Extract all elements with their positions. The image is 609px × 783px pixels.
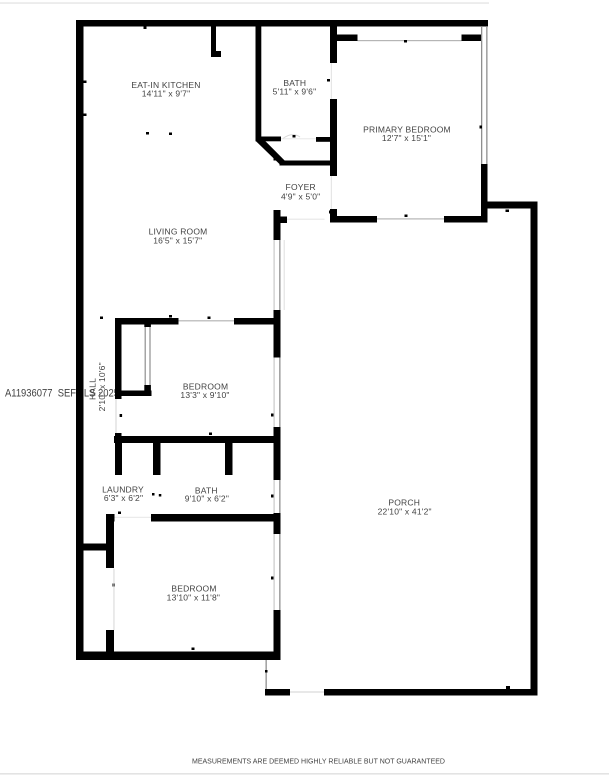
svg-text:FOYER: FOYER — [286, 182, 316, 192]
svg-text:5'11" x 9'6": 5'11" x 9'6" — [273, 87, 317, 97]
svg-text:6'3" x 6'2": 6'3" x 6'2" — [104, 493, 143, 503]
svg-text:14'11" x 9'7": 14'11" x 9'7" — [142, 88, 191, 98]
svg-text:16'5" x 15'7": 16'5" x 15'7" — [153, 236, 202, 246]
svg-text:22'10" x 41'2": 22'10" x 41'2" — [378, 507, 432, 517]
svg-text:13'10" x 11'8": 13'10" x 11'8" — [167, 593, 221, 603]
svg-text:HALL: HALL — [87, 378, 97, 400]
svg-text:MEASUREMENTS ARE DEEMED HIGHLY: MEASUREMENTS ARE DEEMED HIGHLY RELIABLE … — [192, 756, 445, 765]
svg-text:2'10" x 10'6": 2'10" x 10'6" — [97, 362, 107, 411]
svg-text:4'9" x 5'0": 4'9" x 5'0" — [281, 192, 320, 202]
svg-text:12'7" x 15'1": 12'7" x 15'1" — [382, 133, 431, 143]
svg-text:9'10" x 6'2": 9'10" x 6'2" — [185, 493, 229, 503]
svg-text:13'3" x 9'10": 13'3" x 9'10" — [180, 390, 229, 400]
